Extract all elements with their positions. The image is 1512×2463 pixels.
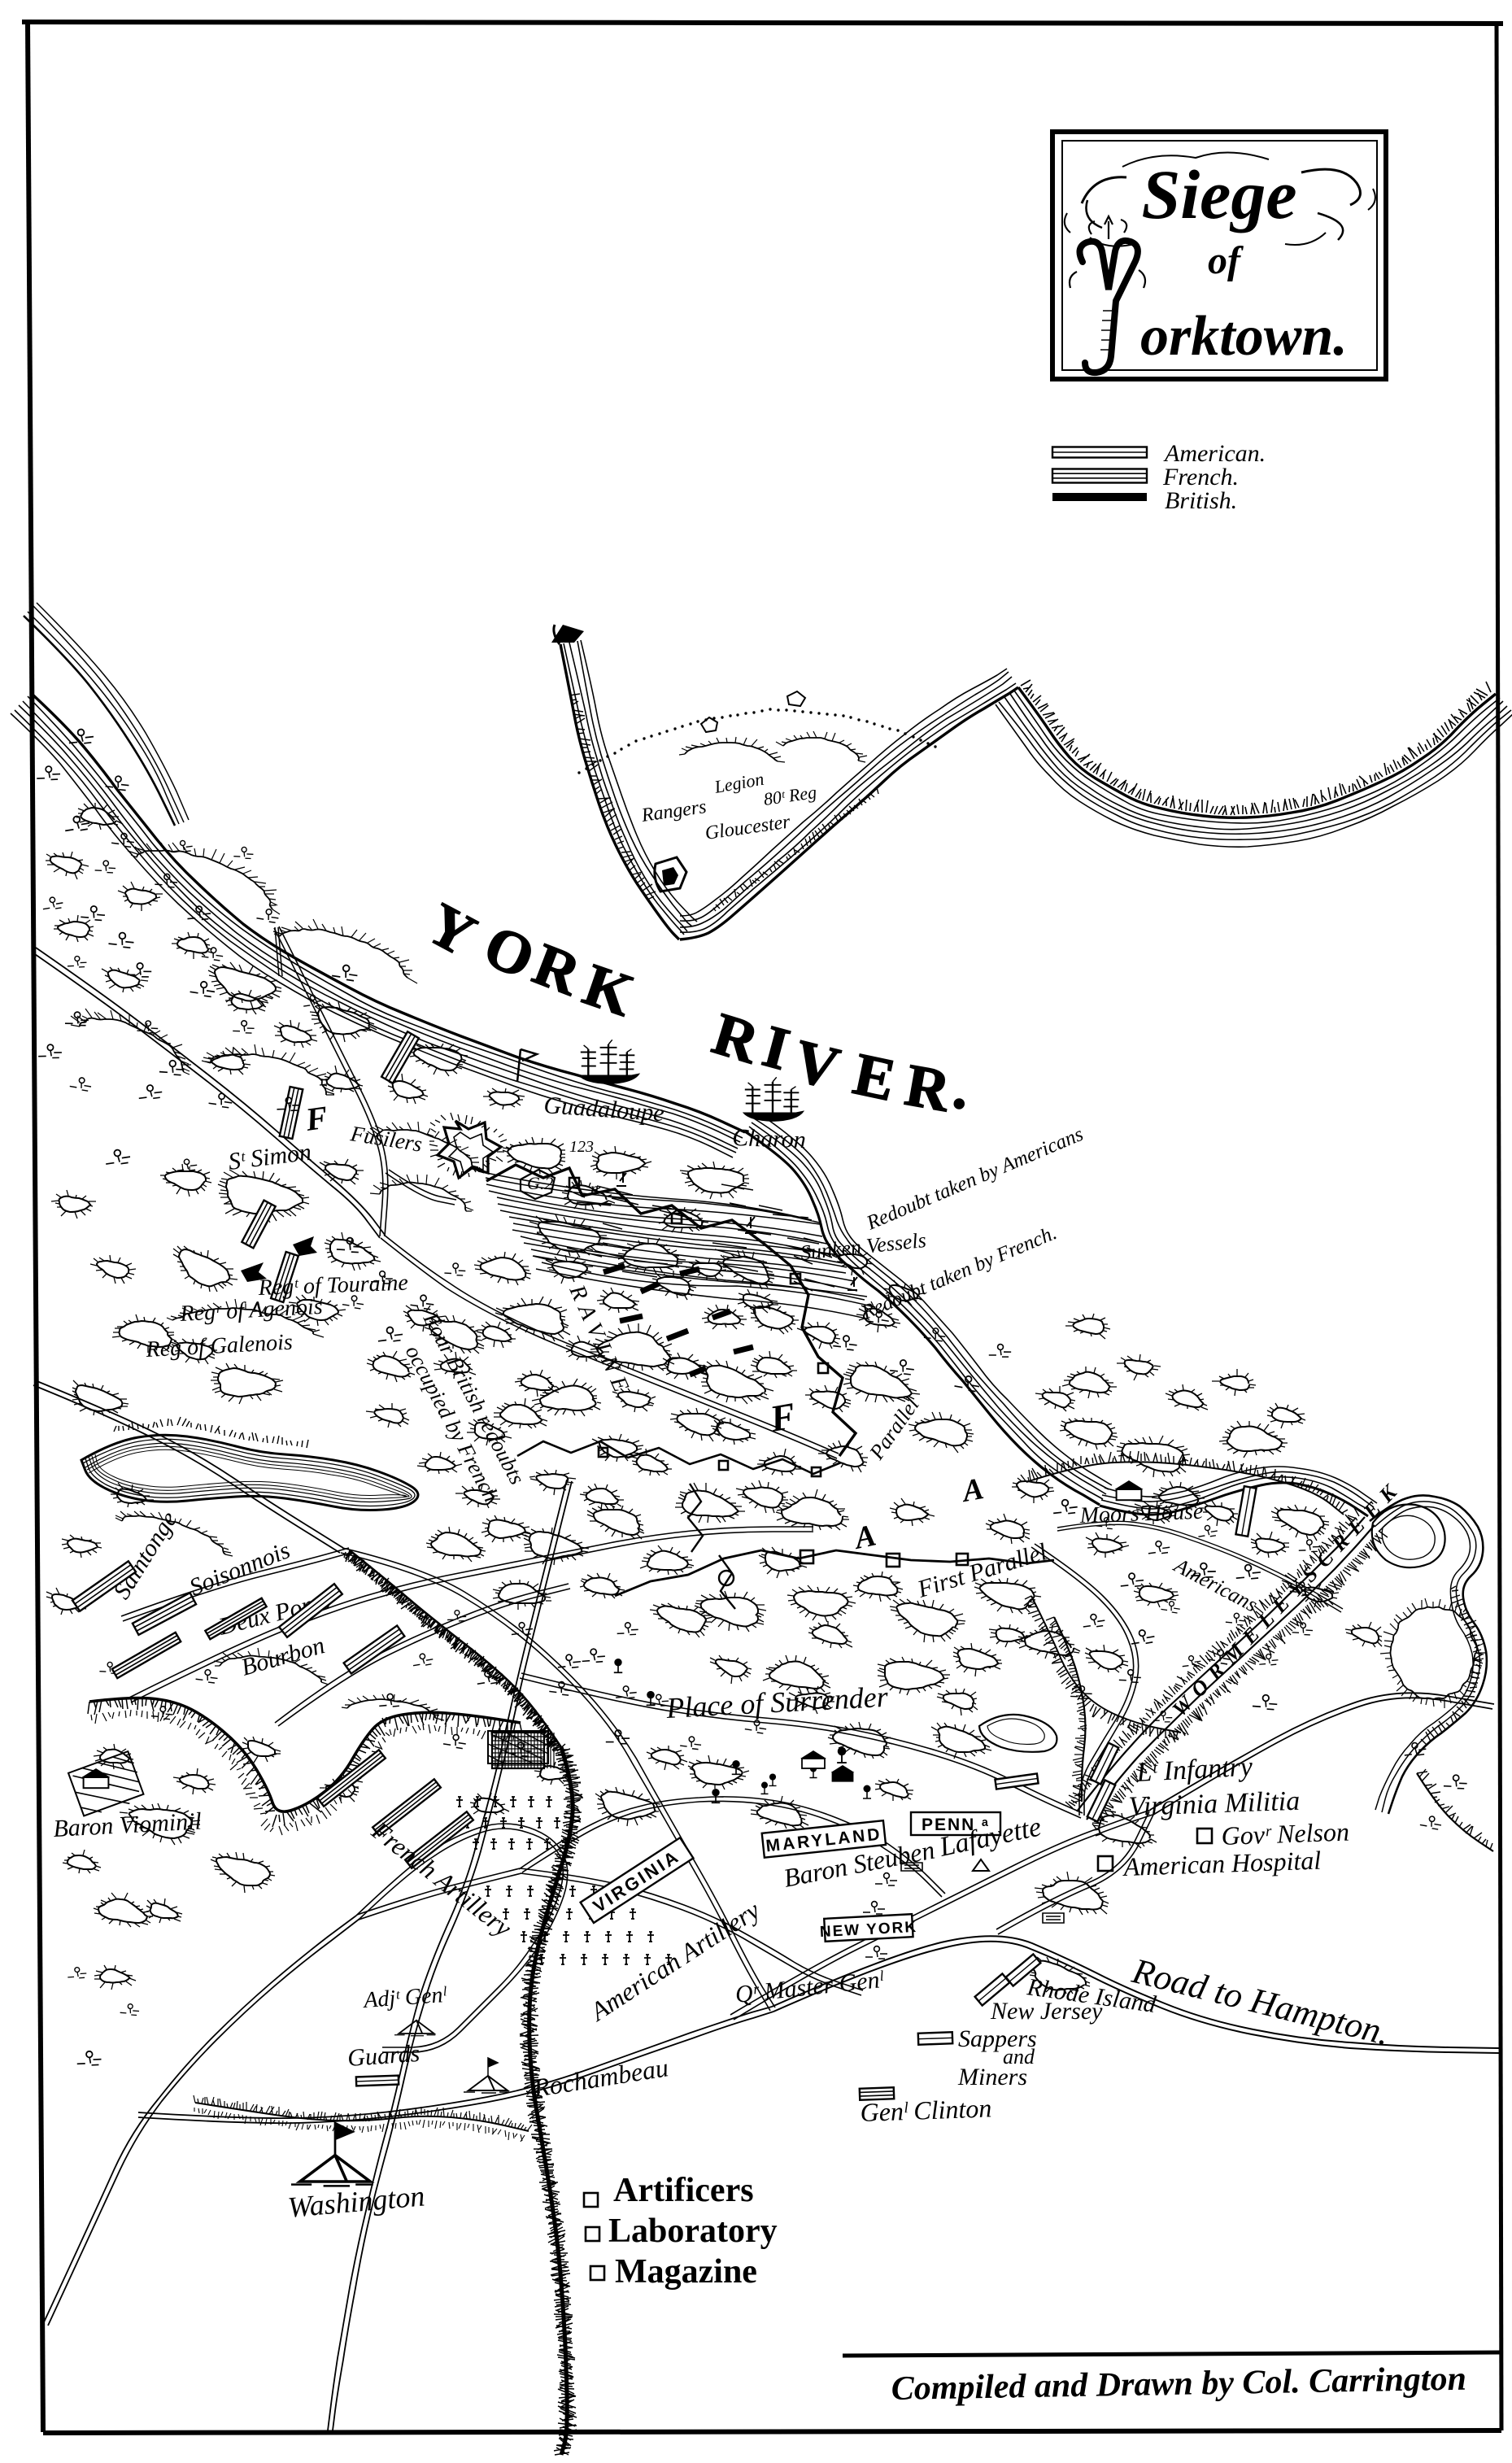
svg-text:Moors House: Moors House bbox=[1078, 1499, 1204, 1528]
svg-text:n: n bbox=[590, 1180, 599, 1198]
svg-text:123: 123 bbox=[569, 1138, 594, 1156]
svg-text:Artificers: Artificers bbox=[613, 2172, 754, 2209]
svg-text:Guards: Guards bbox=[346, 2040, 420, 2072]
svg-text:G.2: G.2 bbox=[527, 1173, 553, 1193]
svg-text:Siege: Siege bbox=[1141, 155, 1296, 233]
svg-text:Miners: Miners bbox=[957, 2064, 1027, 2090]
svg-text:of: of bbox=[1208, 239, 1244, 282]
svg-text:Laboratory: Laboratory bbox=[608, 2212, 778, 2250]
svg-text:New Jersey: New Jersey bbox=[990, 1998, 1103, 2025]
svg-text:Magazine: Magazine bbox=[615, 2253, 757, 2291]
svg-text:British.: British. bbox=[1165, 487, 1237, 514]
svg-text:Govʳ Nelson: Govʳ Nelson bbox=[1221, 1817, 1349, 1851]
svg-text:Genˡ Clinton: Genˡ Clinton bbox=[860, 2093, 992, 2127]
svg-text:orktown.: orktown. bbox=[1140, 305, 1348, 368]
svg-text:Charon: Charon bbox=[732, 1124, 807, 1153]
svg-text:.: . bbox=[952, 1055, 967, 1122]
svg-text:Virginia Militia: Virginia Militia bbox=[1128, 1786, 1301, 1822]
svg-text:Lᵗ Infantry: Lᵗ Infantry bbox=[1135, 1752, 1253, 1789]
